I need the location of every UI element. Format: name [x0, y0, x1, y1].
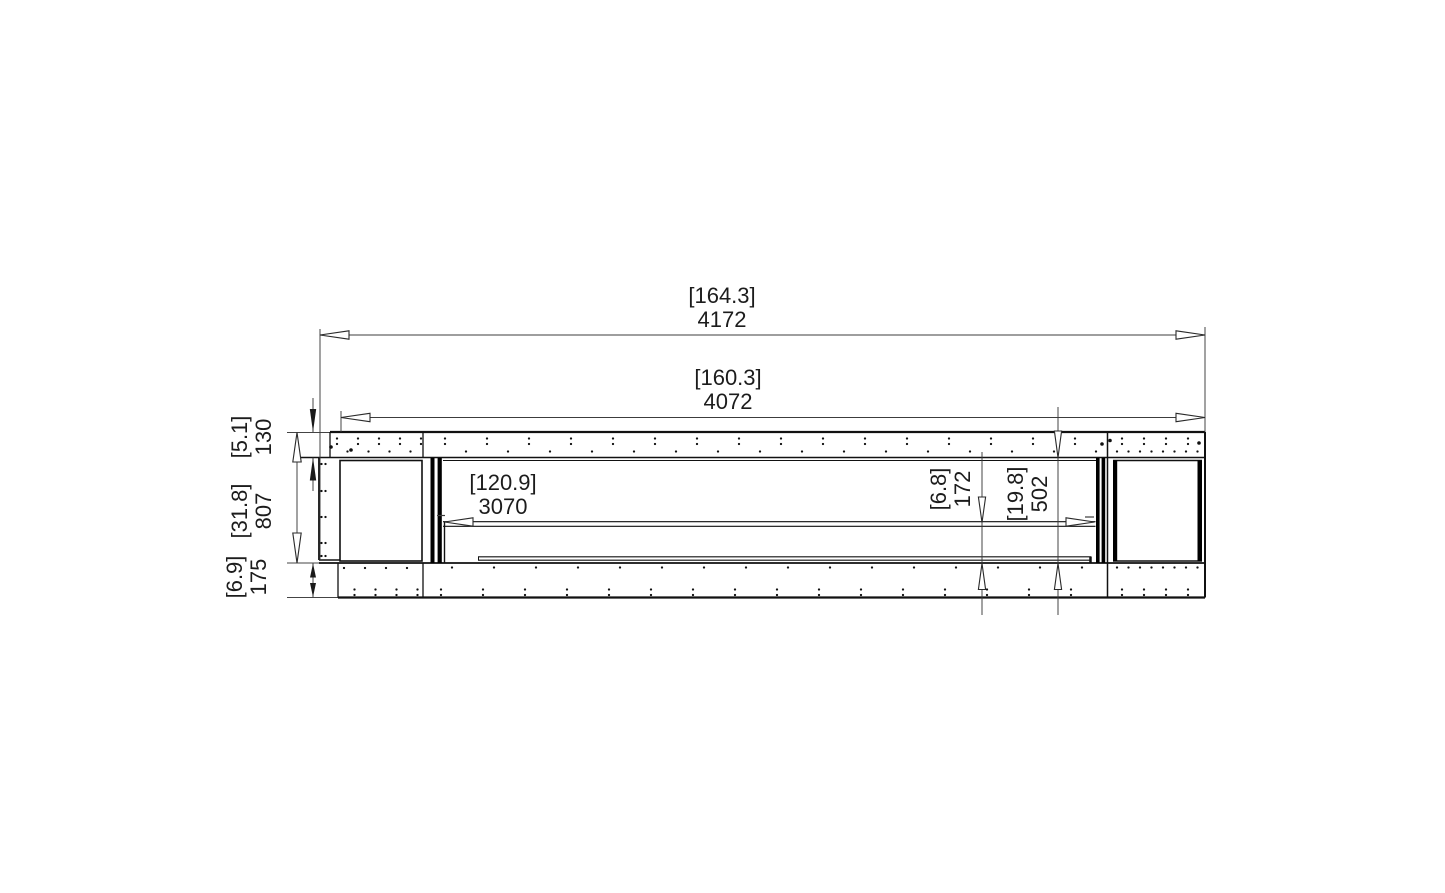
dim-top-panel-height-inches: [5.1]	[228, 402, 252, 472]
dim-base-height-label: [6.9] 175	[223, 542, 271, 612]
dim-burner-to-floor-inches: [6.8]	[927, 454, 951, 524]
dim-inner-width-label: [160.3] 4072	[628, 366, 828, 414]
dim-inner-width-inches: [160.3]	[628, 366, 828, 390]
dim-overall-width-label: [164.3] 4172	[622, 284, 822, 332]
dim-body-height-label: [31.8] 807	[228, 471, 276, 551]
dim-burner-width-inches: [120.9]	[418, 471, 588, 495]
dim-overall-width-inches: [164.3]	[622, 284, 822, 308]
technical-drawing-canvas: [164.3] 4172 [160.3] 4072 [120.9] 3070 […	[0, 0, 1445, 893]
dim-body-height-mm: 807	[252, 471, 276, 551]
small-arrowheads	[310, 409, 316, 597]
dim-top-panel-height-mm: 130	[252, 402, 276, 472]
dim-opening-height-inches: [19.8]	[1004, 454, 1028, 534]
dim-body-height-inches: [31.8]	[228, 471, 252, 551]
dim-overall-width-mm: 4172	[622, 308, 822, 332]
left-cabinet	[319, 458, 422, 562]
dim-burner-to-floor-label: [6.8] 172	[927, 454, 975, 524]
dim-burner-width-mm: 3070	[418, 495, 588, 519]
dim-burner-width-label: [120.9] 3070	[418, 471, 588, 519]
dim-top-panel-height-label: [5.1] 130	[228, 402, 276, 472]
burner-tray	[443, 522, 1096, 563]
dim-opening-height-label: [19.8] 502	[1004, 454, 1052, 534]
dimension-drawing-svg	[0, 0, 1445, 893]
right-cabinet	[1113, 461, 1202, 562]
dim-inner-width-mm: 4072	[628, 390, 828, 414]
dim-burner-to-floor-mm: 172	[951, 454, 975, 524]
dim-base-height-mm: 175	[247, 542, 271, 612]
dim-base-height-inches: [6.9]	[223, 542, 247, 612]
dim-opening-height-mm: 502	[1028, 454, 1052, 534]
